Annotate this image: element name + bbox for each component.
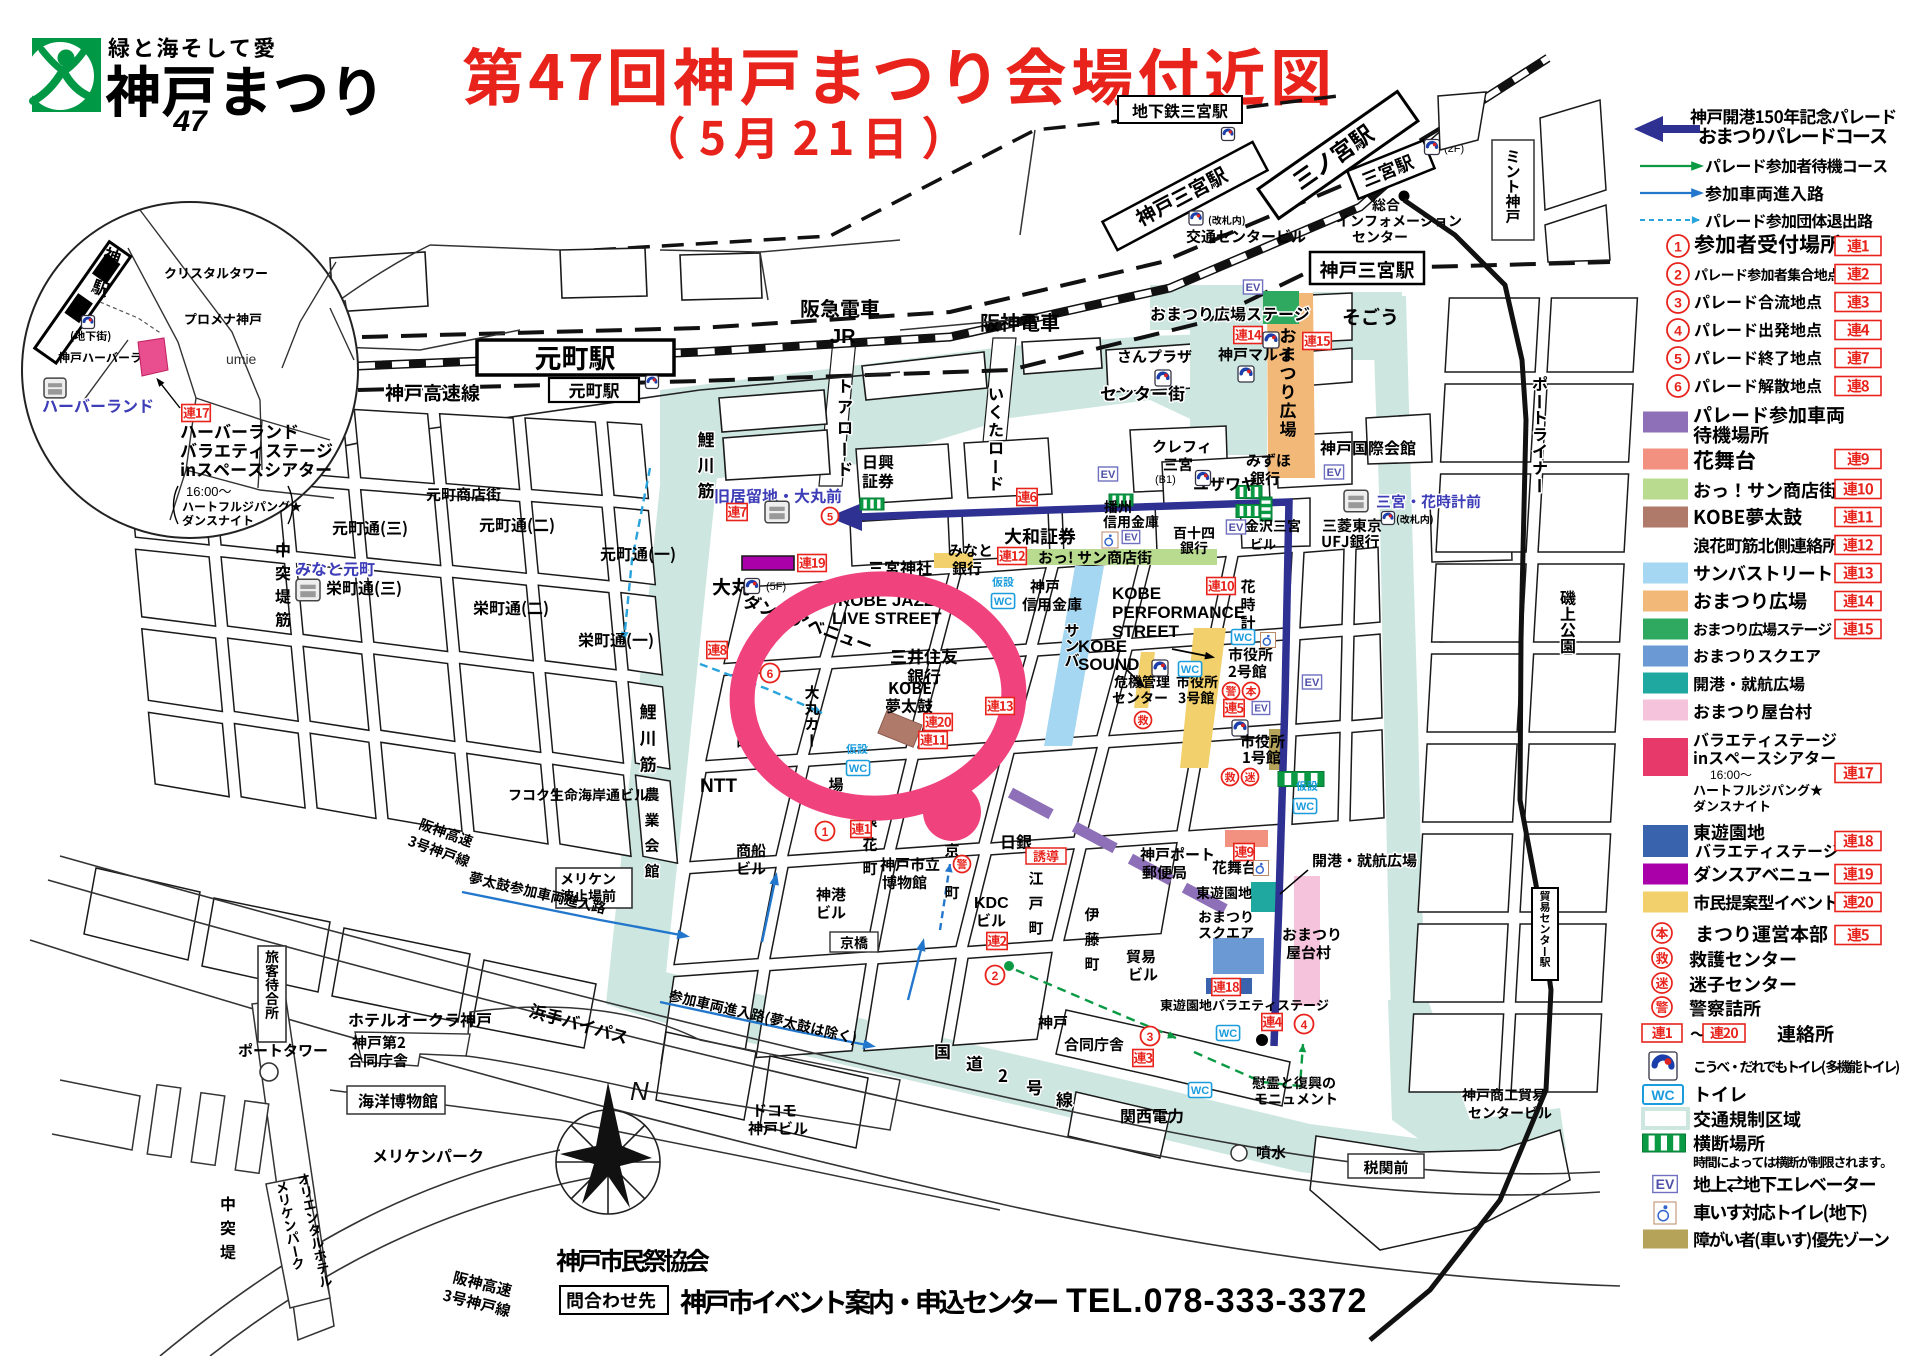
svg-text:EV: EV	[1254, 704, 1268, 715]
svg-text:2: 2	[992, 969, 999, 983]
svg-text:WC: WC	[1234, 632, 1252, 644]
svg-text:EV: EV	[1327, 467, 1342, 479]
svg-text:1: 1	[822, 825, 829, 839]
svg-text:5: 5	[1674, 351, 1682, 367]
svg-text:47: 47	[172, 105, 208, 138]
svg-text:EV: EV	[1101, 469, 1116, 481]
svg-text:SOUND: SOUND	[1078, 655, 1139, 674]
svg-text:(5F): (5F)	[766, 581, 786, 593]
svg-text:WC: WC	[994, 596, 1012, 608]
svg-text:TEL.078-333-3372: TEL.078-333-3372	[1066, 1282, 1367, 1320]
svg-text:6: 6	[767, 667, 774, 681]
svg-text:EV: EV	[1305, 677, 1320, 689]
svg-text:5: 5	[827, 511, 833, 523]
svg-text:PERFORMANCE: PERFORMANCE	[1112, 603, 1245, 622]
svg-text:WC: WC	[1191, 1085, 1209, 1097]
svg-text:16:00〜: 16:00〜	[1710, 768, 1752, 782]
svg-text:umie: umie	[226, 351, 257, 367]
svg-text:WC: WC	[1651, 1087, 1674, 1103]
svg-text:KOBE: KOBE	[1078, 637, 1127, 656]
svg-text:(B1): (B1)	[1155, 474, 1176, 486]
svg-text:KOBE: KOBE	[1112, 584, 1161, 603]
svg-text:EV: EV	[1124, 533, 1138, 544]
svg-text:NTT: NTT	[700, 776, 737, 797]
svg-text:WC: WC	[849, 763, 867, 775]
svg-text:EV: EV	[1246, 282, 1261, 294]
svg-text:N: N	[630, 1076, 649, 1106]
svg-text:EV: EV	[1656, 1176, 1675, 1192]
svg-text:4: 4	[1674, 323, 1682, 339]
svg-text:3: 3	[1674, 295, 1682, 311]
svg-text:1: 1	[1674, 239, 1682, 255]
svg-text:6: 6	[1674, 379, 1682, 395]
svg-text:2: 2	[1674, 267, 1682, 283]
svg-text:EV: EV	[1229, 522, 1244, 534]
svg-text:JR: JR	[830, 326, 856, 348]
svg-text:WC: WC	[1181, 664, 1199, 676]
svg-text:4: 4	[1301, 1018, 1308, 1032]
svg-text:LIVE STREET: LIVE STREET	[832, 609, 942, 628]
svg-text:KDC: KDC	[974, 895, 1009, 912]
svg-text:WC: WC	[1296, 801, 1314, 813]
svg-text:16:00〜: 16:00〜	[186, 484, 232, 499]
svg-text:3: 3	[1147, 1030, 1154, 1044]
svg-text:WC: WC	[1219, 1028, 1237, 1040]
